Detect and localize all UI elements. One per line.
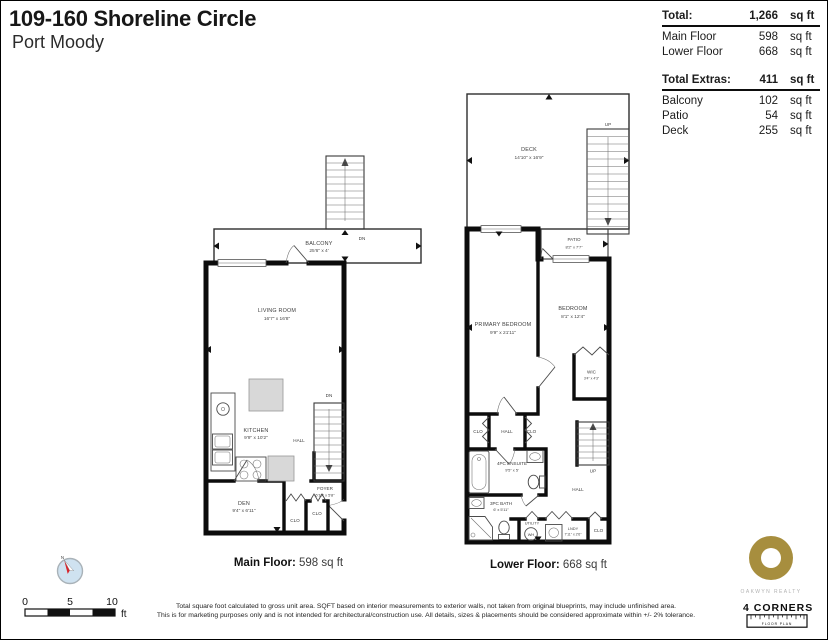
oakwyn-realty-label: OAKWYN REALTY [741, 589, 802, 595]
row-label: Lower Floor [662, 45, 738, 60]
room-label-laundry: LNDY [568, 526, 579, 531]
room-label-hall: HALL [501, 429, 513, 434]
main-floor-caption: Main Floor: 598 sq ft [201, 557, 376, 569]
four-corners-label: 4 CORNERS [743, 602, 811, 614]
row-value: 668 [738, 45, 778, 60]
closet-label: CLO [594, 528, 604, 533]
balcony: BALCONY 25'6" x 4' DN [214, 229, 422, 263]
wic-bifold-door [574, 347, 609, 355]
room-dims-living-room: 16'7" x 16'8" [264, 316, 291, 322]
extras-header-row: Total Extras: 411 sq ft [662, 73, 820, 91]
room-label-primary-bedroom: PRIMARY BEDROOM [475, 322, 532, 328]
stairs-dn-label: DN [359, 236, 366, 241]
page-subtitle: Port Moody [12, 32, 104, 53]
row-unit: sq ft [790, 124, 820, 139]
corner-shower [469, 517, 493, 541]
room-label-utility: UTILITY [525, 521, 540, 526]
patio-door [543, 249, 554, 260]
lower-floor-plan: DECK 14'10" x 16'9" UP PATIO 8'2" x 7'7" [459, 87, 649, 552]
closet-label: CLO [312, 511, 322, 516]
oakwyn-realty-logo: OAKWYN REALTY [734, 532, 818, 598]
lower-floor-caption: Lower Floor: 668 sq ft [461, 559, 636, 571]
room-dims-bath: 6' x 5'11" [493, 507, 509, 512]
row-unit: sq ft [790, 30, 820, 45]
sink [469, 498, 484, 509]
table-row: Patio 54 sq ft [662, 109, 820, 124]
water-heater-label: WH [528, 532, 535, 537]
extras-label: Total Extras: [662, 73, 738, 88]
room-dims-laundry: 7'11" x 2'6" [565, 533, 583, 537]
interior-staircase [314, 403, 344, 481]
scale-tick-0: 0 [22, 596, 28, 608]
washer [546, 525, 563, 542]
table-row: Lower Floor 668 sq ft [662, 45, 820, 60]
four-corners-logo: 4 CORNERS FLOOR PLAN [743, 602, 811, 633]
interior-walls [467, 259, 609, 542]
four-corners-sub-label: FLOOR PLAN [762, 622, 792, 626]
row-label: Deck [662, 124, 738, 139]
room-dims-ensuite: 9'5" x 5' [505, 468, 519, 473]
table-row: Main Floor 598 sq ft [662, 30, 820, 45]
row-value: 598 [738, 30, 778, 45]
balcony-door [294, 246, 309, 264]
closet-label: CLO [473, 429, 483, 434]
main-floor-plan: BALCONY 25'6" x 4' DN [189, 151, 434, 553]
utility-door [525, 512, 539, 520]
row-value: 54 [738, 109, 778, 124]
room-label-balcony: BALCONY [305, 241, 332, 247]
deck: DECK 14'10" x 16'9" [467, 94, 630, 229]
scale-bar: 0 5 10 ft [19, 593, 137, 627]
scale-tick-5: 5 [67, 596, 73, 608]
row-value: 255 [738, 124, 778, 139]
floorplan-sheet: 109-160 Shoreline Circle Port Moody Tota… [0, 0, 828, 640]
row-unit: sq ft [790, 45, 820, 60]
room-label-patio: PATIO [567, 237, 581, 242]
closet-bifold-door [286, 494, 306, 501]
ruler-icon: FLOOR PLAN [746, 614, 808, 628]
bath-door [526, 495, 539, 506]
closet-door [588, 512, 602, 519]
total-label: Total: [662, 9, 738, 24]
room-dims-kitchen: 9'9" x 10'2" [244, 435, 268, 441]
room-dims-balcony: 25'6" x 4' [309, 248, 328, 254]
room-label-kitchen: KITCHEN [243, 428, 268, 434]
room-label-ensuite: 4PC ENSUITE [497, 461, 527, 466]
room-label-living-room: LIVING ROOM [258, 308, 296, 314]
table-row: Deck 255 sq ft [662, 124, 820, 139]
disclaimer-line-1: Total square foot calculated to gross un… [126, 602, 726, 611]
page-title: 109-160 Shoreline Circle [9, 6, 256, 32]
interior-staircase [577, 422, 609, 465]
caption-label: Main Floor: [234, 557, 296, 569]
disclaimer: Total square foot calculated to gross un… [126, 602, 726, 620]
room-label-hall: HALL [572, 487, 584, 492]
row-unit: sq ft [790, 109, 820, 124]
exterior-staircase [326, 156, 364, 229]
stairs-up-label: UP [605, 122, 611, 127]
room-dims-bedroom: 8'1" x 12'4" [561, 314, 585, 320]
compass-icon: N [51, 551, 89, 591]
entry-door [329, 506, 345, 522]
stairs-up-label: UP [590, 469, 596, 474]
row-label: Patio [662, 109, 738, 124]
row-unit: sq ft [790, 94, 820, 109]
laundry-bifold-door [545, 512, 573, 520]
row-label: Main Floor [662, 30, 738, 45]
closet-label: CLO [527, 429, 537, 434]
scale-tick-10: 10 [106, 596, 118, 608]
room-dims-patio: 8'2" x 7'7" [565, 245, 583, 250]
total-unit: sq ft [790, 9, 820, 24]
sink [217, 403, 229, 415]
compass-north-label: N [61, 555, 64, 560]
room-label-bedroom: BEDROOM [558, 306, 588, 312]
dimension-markers [206, 346, 345, 533]
caption-value: 598 sq ft [299, 557, 343, 569]
total-value: 1,266 [738, 9, 778, 24]
bedroom-door [538, 367, 555, 388]
caption-value: 668 sq ft [563, 559, 607, 571]
table-row: Balcony 102 sq ft [662, 94, 820, 109]
room-dims-foyer: 6'10" x 5'8" [315, 493, 335, 498]
toilet [540, 476, 546, 488]
caption-label: Lower Floor: [490, 559, 560, 571]
counter [268, 456, 294, 481]
total-header-row: Total: 1,266 sq ft [662, 9, 820, 27]
utility-fixtures: WH [525, 525, 562, 542]
hall-door [504, 397, 517, 414]
kitchen-island [249, 379, 283, 411]
room-dims-primary-bedroom: 9'9" x 21'11" [490, 330, 516, 336]
extras-unit: sq ft [790, 73, 820, 88]
room-label-den: DEN [238, 501, 250, 507]
room-dims-deck: 14'10" x 16'9" [515, 155, 544, 161]
room-label-wic: WIC [587, 370, 597, 375]
sink [527, 451, 543, 463]
kitchen-counter [211, 393, 235, 471]
room-dims-wic: 3'4" x 4'3" [584, 377, 600, 381]
room-label-bath: 3PC BATH [490, 501, 512, 506]
room-dims-den: 9'4" x 6'11" [232, 508, 256, 514]
area-summary-table: Total: 1,266 sq ft Main Floor 598 sq ft … [662, 9, 820, 139]
room-label-hall: HALL [293, 438, 305, 443]
toilet [499, 521, 509, 534]
room-label-foyer: FOYER [317, 486, 334, 491]
stairs-dn-label: DN [326, 393, 333, 398]
row-label: Balcony [662, 94, 738, 109]
exterior-staircase: UP [587, 122, 629, 234]
closet-label: CLO [290, 518, 300, 523]
row-value: 102 [738, 94, 778, 109]
room-label-deck: DECK [521, 147, 537, 153]
extras-value: 411 [738, 73, 778, 88]
disclaimer-line-2: This is for marketing purposes only and … [126, 611, 726, 620]
